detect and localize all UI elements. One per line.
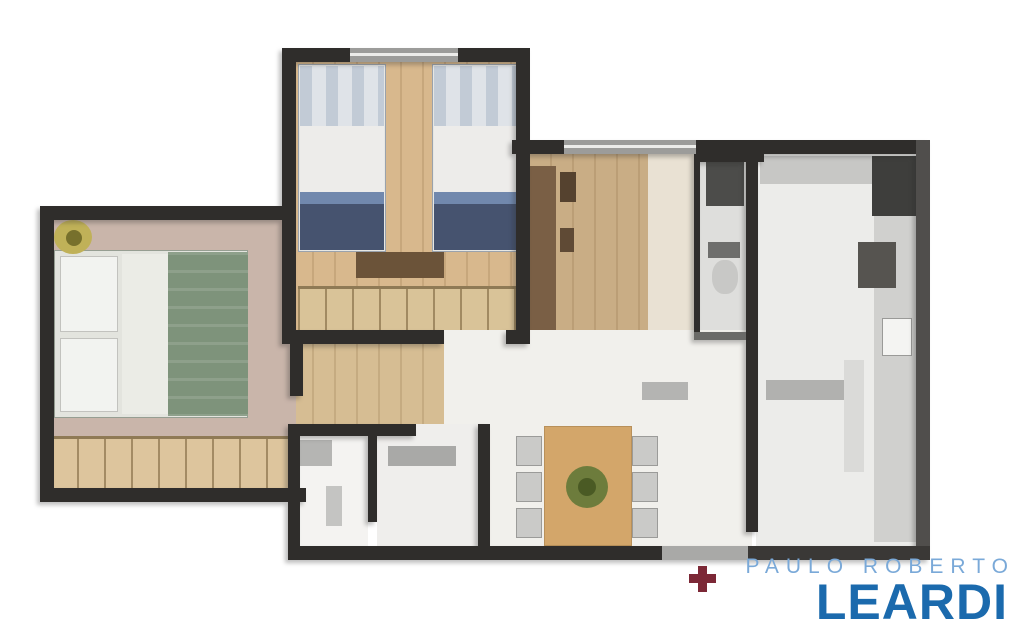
- floor-plan: PAULO ROBERTO LEARDI: [0, 0, 1024, 640]
- brand-name-main: LEARDI: [745, 577, 1008, 628]
- window-bedroom1-glass-line: [350, 53, 458, 56]
- entrance-marker-cross-h: [689, 574, 716, 583]
- brand-watermark: PAULO ROBERTO LEARDI: [745, 556, 1008, 628]
- overlay-layer: [0, 0, 1024, 640]
- window-hall-glass-line: [564, 145, 696, 148]
